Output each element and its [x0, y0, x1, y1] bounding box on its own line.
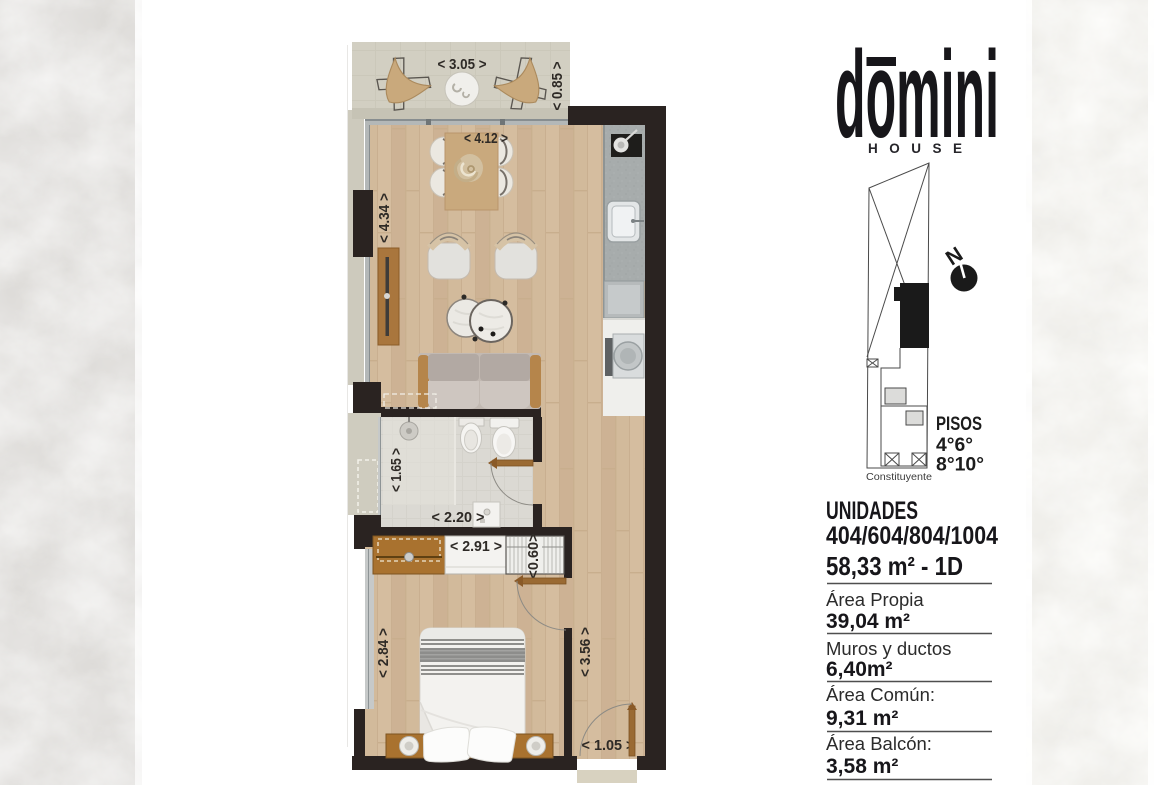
svg-text:9,31 m²: 9,31 m²: [826, 707, 898, 730]
svg-text:3,58 m²: 3,58 m²: [826, 755, 898, 778]
svg-text:404/604/804/1004: 404/604/804/1004: [826, 522, 998, 550]
svg-text:HOUSE: HOUSE: [868, 141, 974, 156]
svg-text:Muros y ductos: Muros y ductos: [826, 638, 951, 659]
svg-text:< 2.91 >: < 2.91 >: [450, 539, 502, 555]
svg-text:6,40m²: 6,40m²: [826, 658, 893, 681]
svg-text:Área Común:: Área Común:: [826, 684, 935, 705]
svg-text:< 3.56 >: < 3.56 >: [578, 627, 594, 677]
svg-text:58,33 m² - 1D: 58,33 m² - 1D: [826, 551, 963, 581]
svg-text:39,04 m²: 39,04 m²: [826, 610, 910, 633]
svg-text:Constituyente: Constituyente: [866, 471, 932, 483]
svg-text:< 4.12 >: < 4.12 >: [464, 131, 508, 147]
svg-text:< 3.05 >: < 3.05 >: [438, 57, 487, 73]
svg-text:< 4.34 >: < 4.34 >: [377, 193, 393, 243]
svg-text:< 0.85 >: < 0.85 >: [550, 62, 566, 111]
svg-text:Área Propia: Área Propia: [826, 589, 924, 610]
svg-text:< 2.20 >: < 2.20 >: [432, 510, 485, 526]
svg-text:PISOS: PISOS: [936, 414, 982, 435]
svg-text:< 1.65 >: < 1.65 >: [389, 448, 405, 492]
svg-text:< 2.84 >: < 2.84 >: [376, 628, 392, 678]
svg-text:<0.60>: <0.60>: [526, 533, 542, 578]
svg-text:8°10°: 8°10°: [936, 455, 984, 476]
svg-text:4°6°: 4°6°: [936, 435, 973, 456]
svg-text:UNIDADES: UNIDADES: [826, 497, 918, 525]
svg-text:< 1.05 >: < 1.05 >: [582, 738, 635, 754]
svg-text:Área Balcón:: Área Balcón:: [826, 733, 932, 754]
